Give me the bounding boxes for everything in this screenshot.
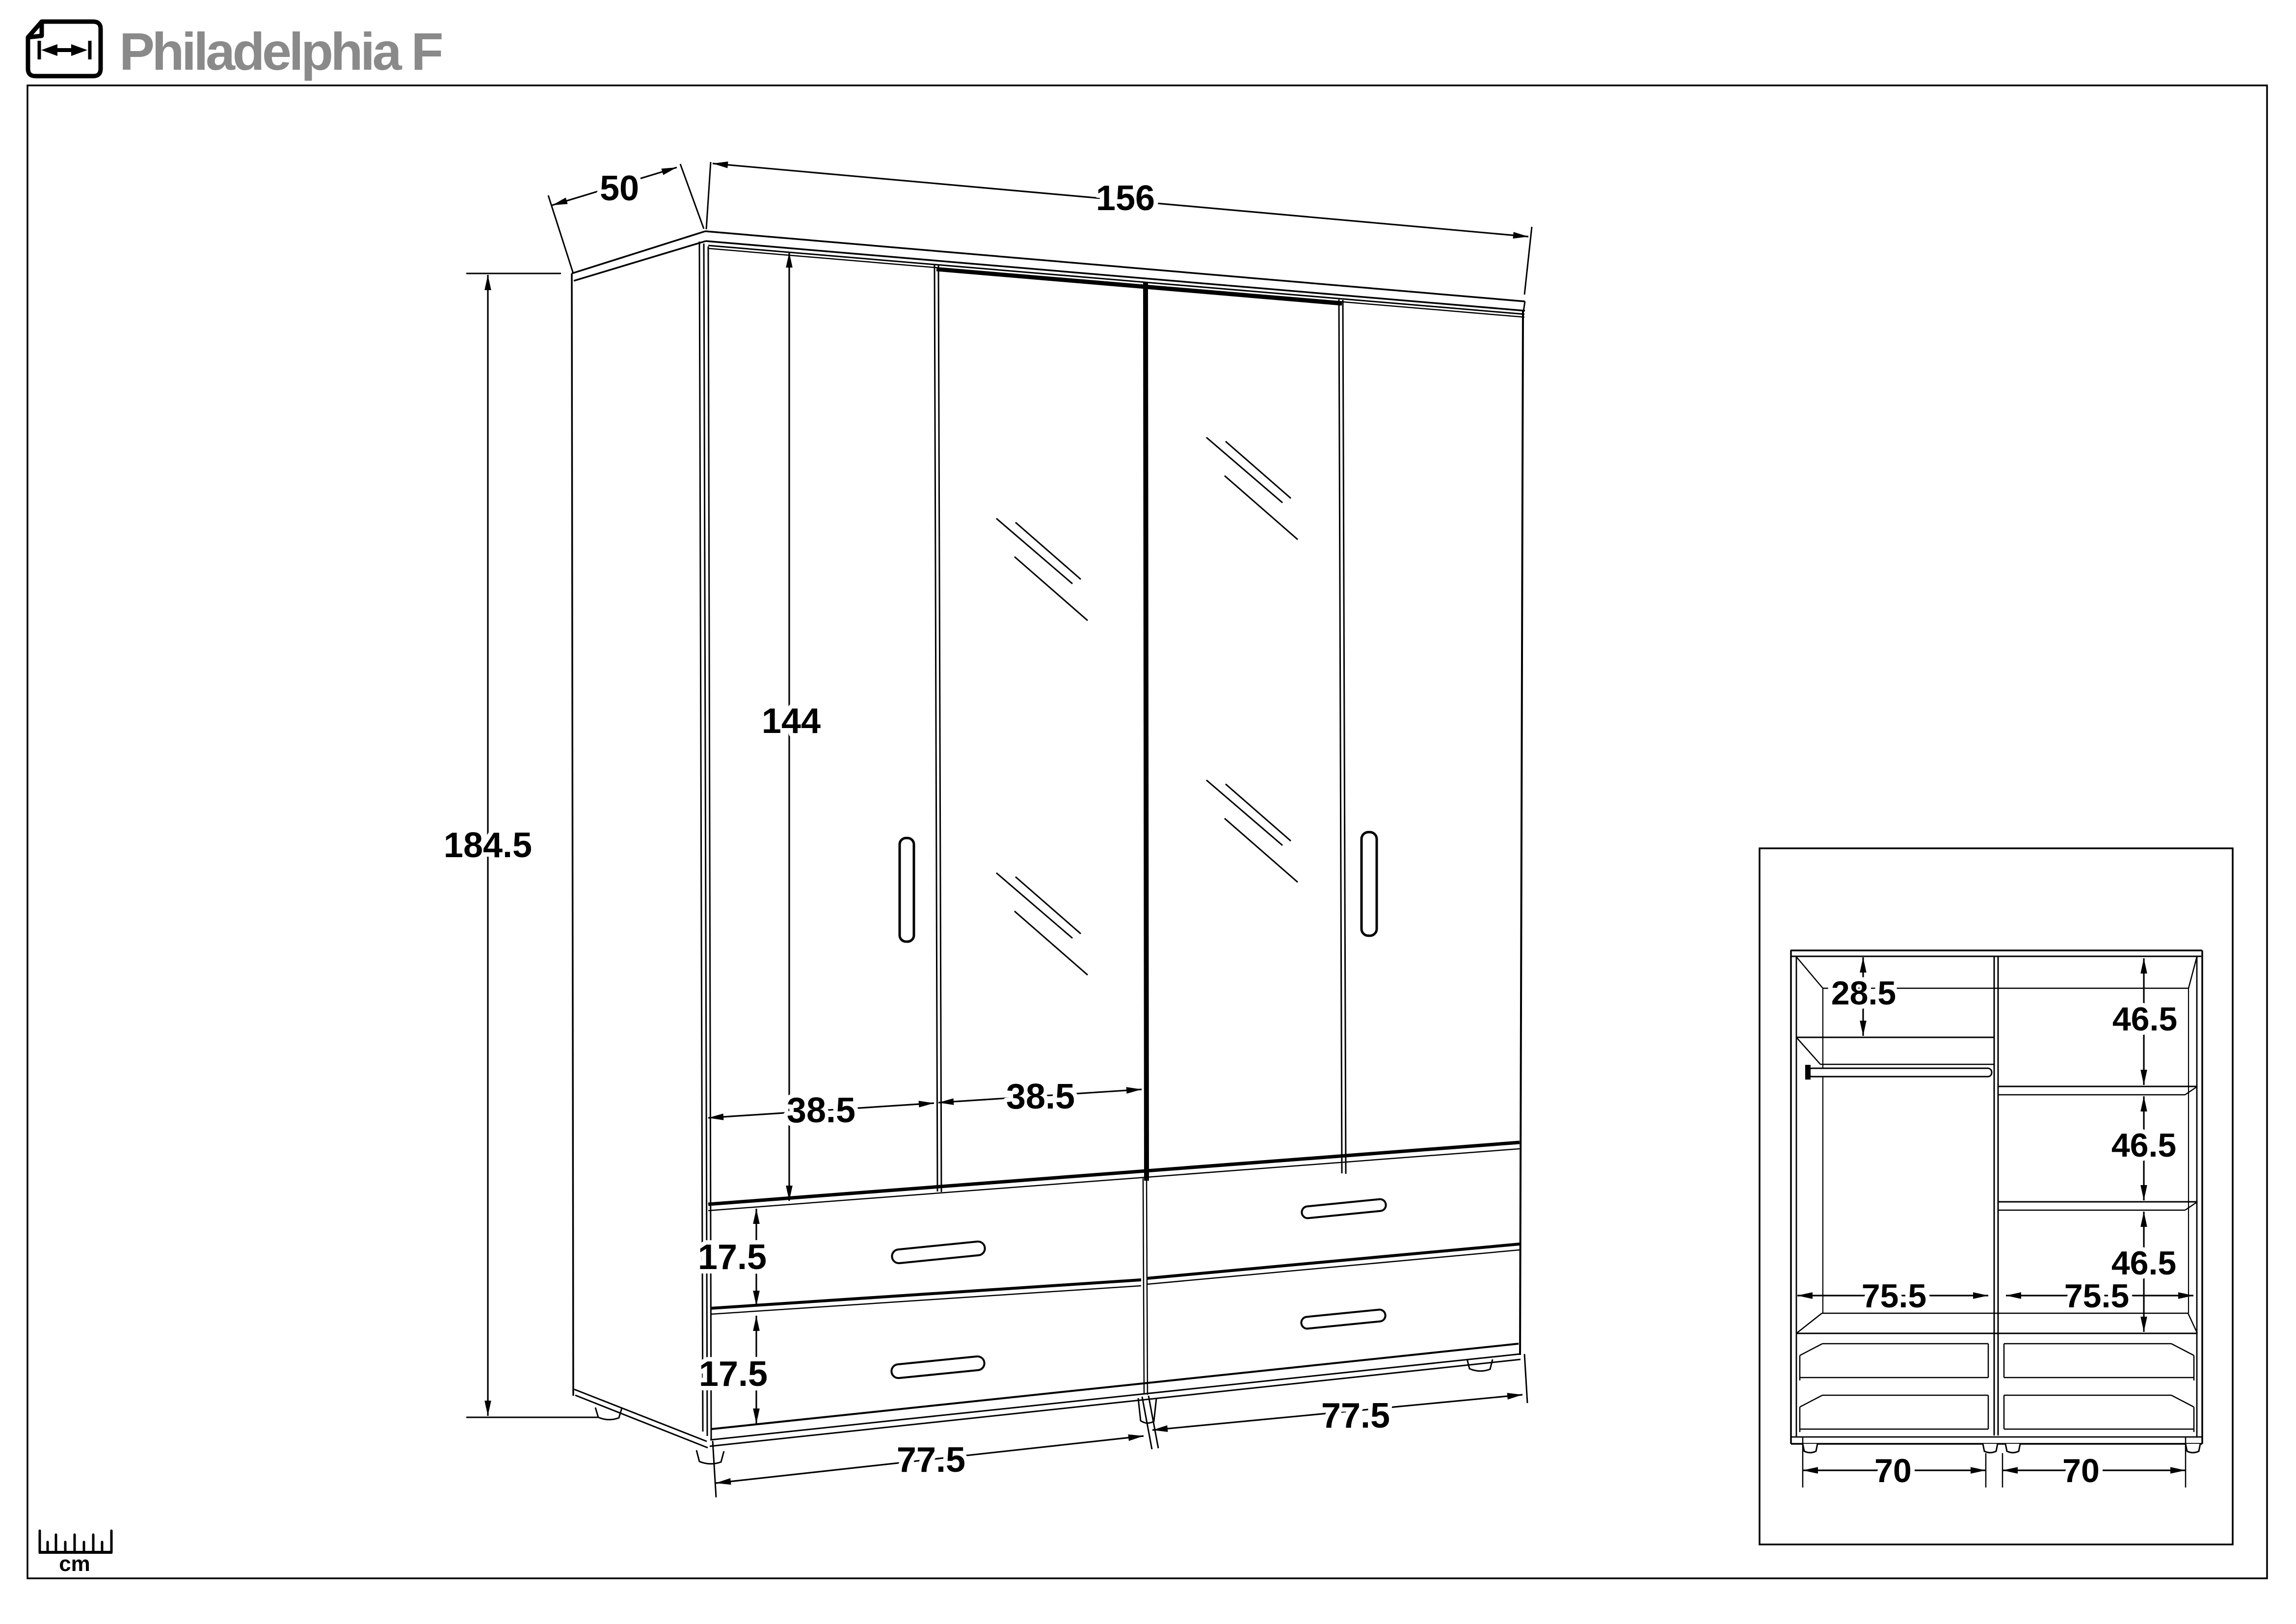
svg-text:38.5: 38.5 — [787, 1091, 855, 1130]
svg-text:184.5: 184.5 — [444, 826, 532, 865]
svg-text:17.5: 17.5 — [698, 1238, 767, 1277]
svg-text:46.5: 46.5 — [2111, 1245, 2176, 1282]
svg-text:70: 70 — [2062, 1452, 2100, 1489]
svg-text:50: 50 — [600, 169, 639, 208]
svg-text:144: 144 — [762, 702, 821, 741]
svg-text:17.5: 17.5 — [699, 1354, 768, 1394]
svg-text:38.5: 38.5 — [1006, 1077, 1075, 1116]
svg-text:75.5: 75.5 — [2064, 1277, 2129, 1315]
svg-text:77.5: 77.5 — [897, 1440, 965, 1480]
svg-text:46.5: 46.5 — [2111, 1127, 2176, 1164]
svg-text:Philadelphia F: Philadelphia F — [119, 22, 442, 81]
svg-text:156: 156 — [1096, 179, 1155, 218]
svg-text:75.5: 75.5 — [1862, 1277, 1926, 1315]
svg-text:77.5: 77.5 — [1321, 1396, 1390, 1435]
svg-text:46.5: 46.5 — [2112, 1001, 2177, 1038]
svg-text:28.5: 28.5 — [1831, 974, 1896, 1012]
svg-text:70: 70 — [1874, 1452, 1912, 1489]
svg-text:cm: cm — [59, 1552, 90, 1576]
